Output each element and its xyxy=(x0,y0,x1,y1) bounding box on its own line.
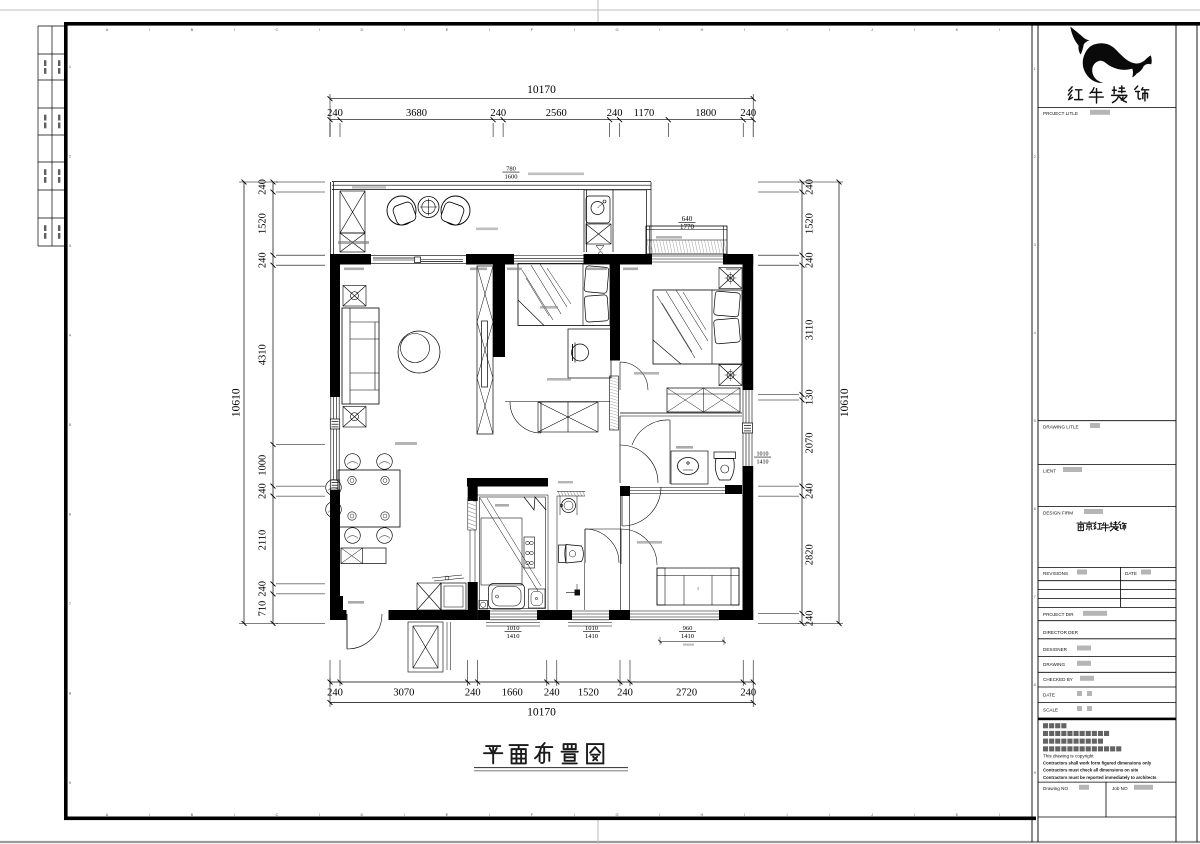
svg-text:I: I xyxy=(319,28,320,32)
svg-text:PROJECT LITLE: PROJECT LITLE xyxy=(1043,111,1078,116)
svg-text:1410: 1410 xyxy=(585,633,598,640)
svg-text:I: I xyxy=(574,813,575,817)
svg-text:240: 240 xyxy=(805,611,816,627)
svg-text:H: H xyxy=(701,812,704,817)
svg-text:E: E xyxy=(446,812,449,817)
svg-text:DATE: DATE xyxy=(1043,693,1055,698)
svg-text:3680: 3680 xyxy=(406,108,427,119)
svg-text:G: G xyxy=(615,27,618,32)
svg-text:Drawing NO: Drawing NO xyxy=(1043,786,1068,791)
svg-text:A: A xyxy=(106,812,109,817)
svg-text:960: 960 xyxy=(683,625,693,632)
svg-text:I: I xyxy=(659,28,660,32)
svg-text:240: 240 xyxy=(607,108,623,119)
svg-text:1410: 1410 xyxy=(681,633,694,640)
svg-text:I: I xyxy=(829,28,830,32)
svg-text:240: 240 xyxy=(258,252,269,268)
svg-text:LIENT: LIENT xyxy=(1043,468,1056,473)
svg-text:I: I xyxy=(149,28,150,32)
svg-text:10610: 10610 xyxy=(839,388,851,417)
svg-text:2720: 2720 xyxy=(676,688,697,699)
svg-text:Contractors must be reported i: Contractors must be reported immediately… xyxy=(1043,775,1157,780)
svg-text:1410: 1410 xyxy=(507,633,520,640)
svg-text:I: I xyxy=(319,813,320,817)
svg-text:240: 240 xyxy=(740,108,756,119)
svg-text:I: I xyxy=(744,813,745,817)
svg-text:1170: 1170 xyxy=(634,108,655,119)
svg-text:I: I xyxy=(829,813,830,817)
svg-text:1600: 1600 xyxy=(505,174,518,181)
svg-text:130: 130 xyxy=(805,389,816,405)
svg-text:1410: 1410 xyxy=(757,460,769,466)
svg-text:1000: 1000 xyxy=(258,455,269,476)
svg-text:PROJECT DIR: PROJECT DIR xyxy=(1043,612,1074,617)
svg-text:DIRECTOR DER: DIRECTOR DER xyxy=(1043,630,1079,635)
svg-text:1010: 1010 xyxy=(757,452,769,458)
svg-text:3110: 3110 xyxy=(805,320,816,341)
svg-text:I: I xyxy=(659,813,660,817)
svg-text:I: I xyxy=(999,813,1000,817)
svg-text:10610: 10610 xyxy=(231,388,243,417)
svg-text:3070: 3070 xyxy=(393,688,414,699)
svg-text:C: C xyxy=(276,27,279,32)
svg-text:2820: 2820 xyxy=(805,544,816,565)
svg-text:Job NO: Job NO xyxy=(1112,786,1128,791)
svg-text:780: 780 xyxy=(506,166,516,173)
svg-text:240: 240 xyxy=(327,108,343,119)
svg-text:B: B xyxy=(191,27,194,32)
svg-text:240: 240 xyxy=(805,252,816,268)
svg-text:DRAWING: DRAWING xyxy=(1043,662,1065,667)
svg-text:240: 240 xyxy=(465,688,481,699)
svg-text:I: I xyxy=(999,28,1000,32)
svg-text:J: J xyxy=(871,812,873,817)
svg-text:I: I xyxy=(786,812,787,817)
svg-text:240: 240 xyxy=(544,688,560,699)
svg-text:2110: 2110 xyxy=(258,530,269,551)
svg-text:240: 240 xyxy=(327,688,343,699)
svg-text:240: 240 xyxy=(258,179,269,195)
svg-text:640: 640 xyxy=(682,215,693,223)
svg-text:K: K xyxy=(956,27,959,32)
svg-text:REVISIONS: REVISIONS xyxy=(1043,571,1068,576)
svg-text:I: I xyxy=(489,28,490,32)
svg-text:240: 240 xyxy=(805,483,816,499)
svg-text:A: A xyxy=(106,27,109,32)
svg-text:DATE: DATE xyxy=(1125,571,1137,576)
svg-text:240: 240 xyxy=(258,581,269,597)
svg-text:D: D xyxy=(361,812,364,817)
svg-text:I: I xyxy=(234,28,235,32)
svg-text:This drawing is copyright: This drawing is copyright xyxy=(1043,754,1094,759)
svg-text:710: 710 xyxy=(258,601,269,617)
svg-text:B: B xyxy=(191,812,194,817)
svg-text:I: I xyxy=(786,27,787,32)
svg-text:Contractors shall work form fi: Contractors shall work form figured dime… xyxy=(1043,761,1152,766)
svg-text:I: I xyxy=(404,813,405,817)
svg-text:240: 240 xyxy=(740,688,756,699)
svg-text:I: I xyxy=(404,28,405,32)
svg-text:240: 240 xyxy=(805,179,816,195)
svg-text:SCALE: SCALE xyxy=(1043,708,1058,713)
svg-text:DESIGN FIRM: DESIGN FIRM xyxy=(1043,510,1073,515)
svg-text:Contractors must check all dim: Contractors must check all dimensions on… xyxy=(1043,768,1139,773)
svg-text:CHECKED BY: CHECKED BY xyxy=(1043,677,1073,682)
svg-text:I: I xyxy=(914,813,915,817)
svg-text:I: I xyxy=(914,28,915,32)
svg-text:3: 3 xyxy=(697,587,699,591)
svg-text:DRAWING LITLE: DRAWING LITLE xyxy=(1043,424,1079,429)
svg-text:I: I xyxy=(744,28,745,32)
svg-text:10170: 10170 xyxy=(527,707,556,719)
svg-text:240: 240 xyxy=(258,483,269,499)
svg-text:C: C xyxy=(276,812,279,817)
svg-text:I: I xyxy=(234,813,235,817)
svg-text:I: I xyxy=(489,813,490,817)
svg-text:I: I xyxy=(574,28,575,32)
svg-text:10170: 10170 xyxy=(527,84,556,96)
svg-text:1520: 1520 xyxy=(258,213,269,234)
svg-text:240: 240 xyxy=(617,688,633,699)
svg-text:K: K xyxy=(956,812,959,817)
svg-text:D: D xyxy=(361,27,364,32)
svg-text:E: E xyxy=(446,27,449,32)
svg-text:2070: 2070 xyxy=(805,433,816,454)
svg-text:H: H xyxy=(701,27,704,32)
svg-text:1800: 1800 xyxy=(695,108,716,119)
svg-text:I: I xyxy=(149,813,150,817)
svg-text:DESIGNER: DESIGNER xyxy=(1043,647,1068,652)
svg-text:2560: 2560 xyxy=(546,108,567,119)
svg-text:4310: 4310 xyxy=(258,344,269,365)
svg-text:1520: 1520 xyxy=(805,213,816,234)
svg-text:J: J xyxy=(871,27,873,32)
svg-text:1660: 1660 xyxy=(502,688,523,699)
svg-text:1520: 1520 xyxy=(578,688,599,699)
svg-text:G: G xyxy=(615,812,618,817)
svg-text:240: 240 xyxy=(490,108,506,119)
